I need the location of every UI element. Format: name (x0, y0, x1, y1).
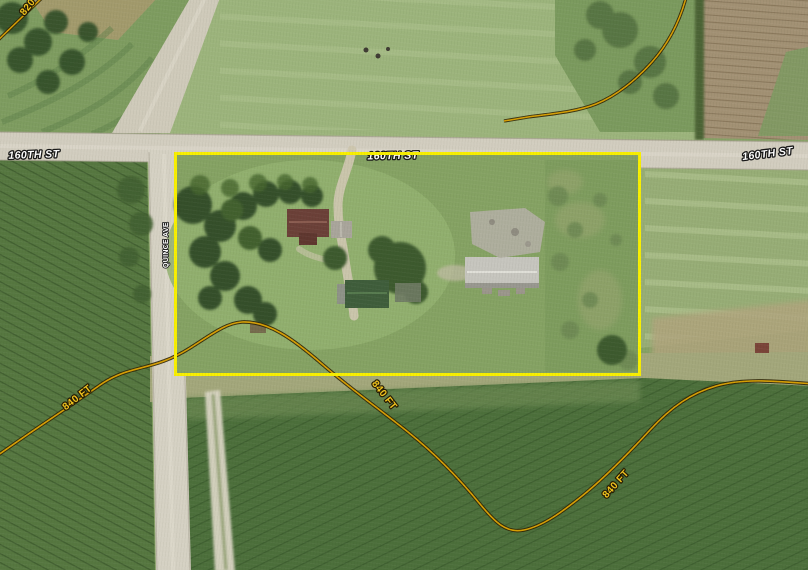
green-roof-barn (337, 280, 389, 308)
aerial-map-view[interactable]: 820 840 FT 840 FT 840 FT QUINCE AVE 160T… (0, 0, 808, 570)
road-label-avenue: QUINCE AVE (163, 222, 170, 268)
farmstead (165, 150, 639, 374)
machine-shed (465, 257, 539, 288)
shed-outlying (755, 343, 769, 353)
map-canvas: 820 840 FT 840 FT 840 FT QUINCE AVE 160T… (0, 0, 808, 570)
garage (331, 221, 352, 238)
road-label-160th-center: 160TH ST (367, 150, 419, 163)
road-label-160th-left: 160TH ST (8, 148, 61, 162)
shed-small (395, 283, 421, 302)
tree-southeast (597, 335, 627, 365)
